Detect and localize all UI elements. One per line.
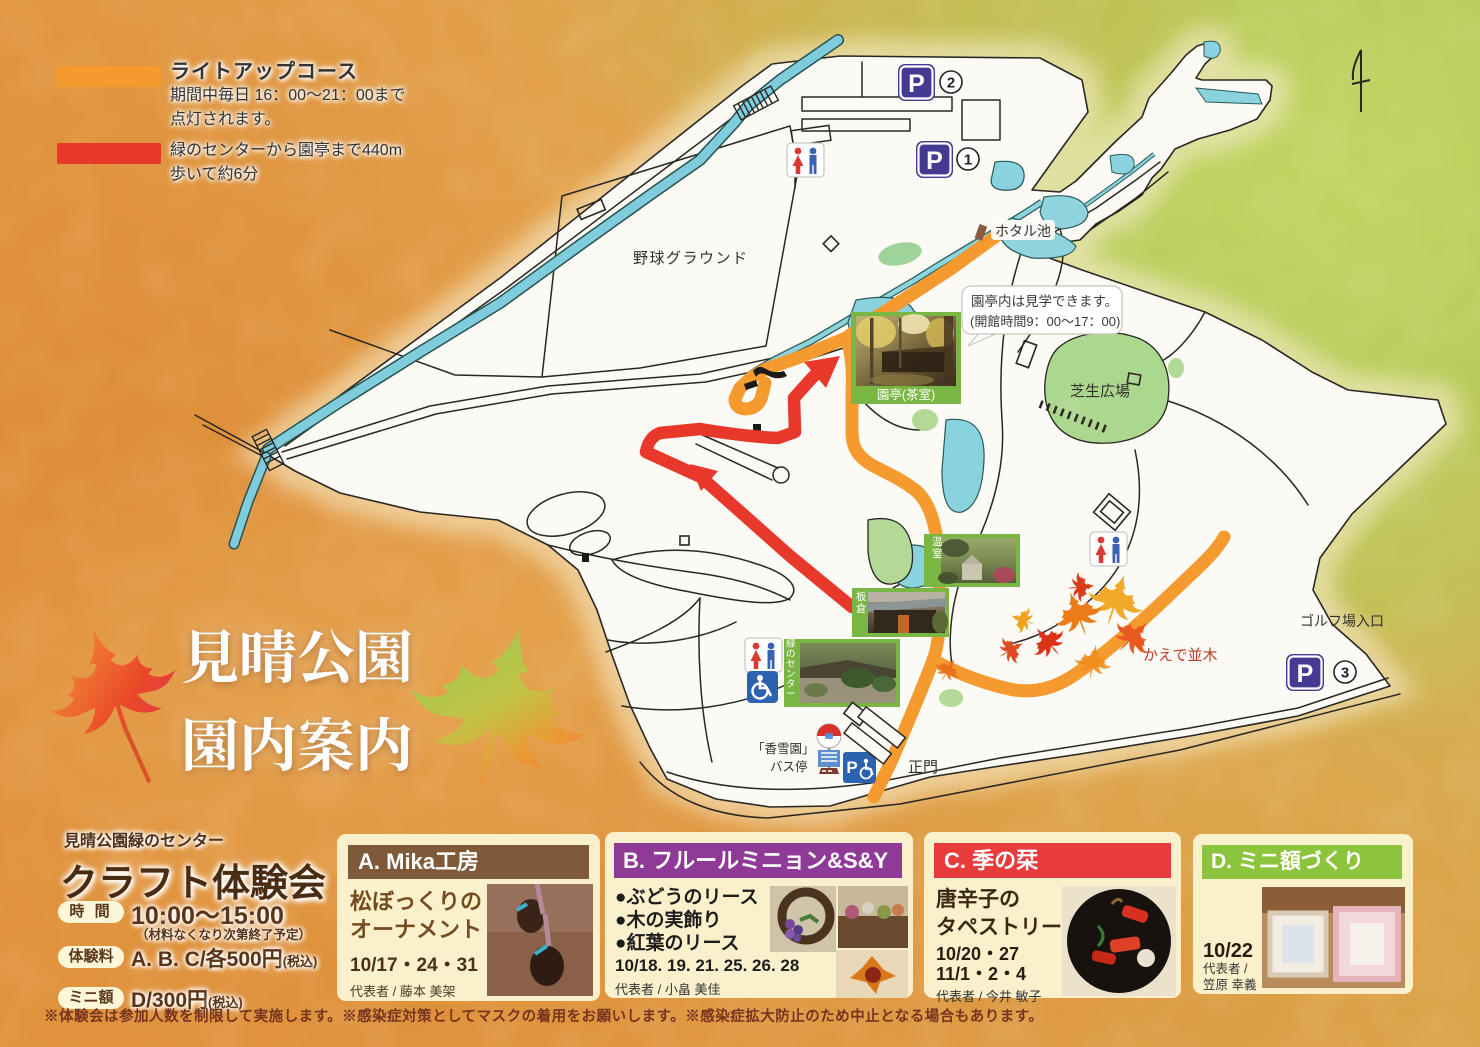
svg-text:3: 3: [1341, 665, 1349, 682]
svg-text:野球グラウンド: 野球グラウンド: [633, 250, 749, 267]
svg-text:P: P: [908, 70, 925, 98]
svg-text:園亭内は見学できます。: 園亭内は見学できます。: [971, 293, 1118, 309]
svg-text:バス停: バス停: [770, 759, 808, 774]
svg-text:ホタル池: ホタル池: [995, 223, 1051, 239]
svg-text:板倉: 板倉: [856, 590, 867, 615]
svg-text:園亭(茶室): 園亭(茶室): [877, 387, 935, 402]
svg-text:温室: 温室: [932, 536, 943, 560]
svg-text:(開館時間9：00～17：00): (開館時間9：00～17：00): [970, 314, 1120, 329]
svg-text:「香雪園」: 「香雪園」: [752, 742, 815, 756]
svg-text:1: 1: [964, 152, 972, 169]
svg-text:芝生広場: 芝生広場: [1070, 383, 1130, 400]
svg-text:P: P: [1297, 660, 1314, 688]
svg-text:かえで並木: かえで並木: [1143, 647, 1218, 664]
svg-text:P: P: [846, 758, 857, 777]
svg-text:緑のセンター: 緑のセンター: [786, 638, 796, 700]
svg-text:正門: 正門: [908, 759, 938, 776]
svg-text:P: P: [926, 147, 943, 175]
svg-text:ゴルフ場入口: ゴルフ場入口: [1300, 613, 1384, 629]
svg-text:2: 2: [947, 75, 955, 92]
